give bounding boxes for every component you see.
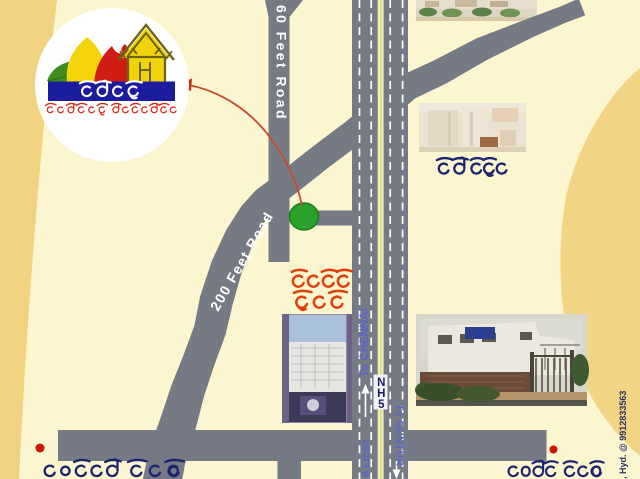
svg-text:s, Hyd. @ 9912833563: s, Hyd. @ 9912833563 [618, 391, 628, 479]
svg-text:5: 5 [378, 399, 385, 411]
svg-text:6 Lines: 6 Lines [360, 439, 372, 477]
svg-text:To CHENNAI: To CHENNAI [359, 308, 371, 377]
svg-text:60 Feet Road: 60 Feet Road [274, 5, 290, 121]
svg-text:To GUNTUR: To GUNTUR [394, 404, 405, 466]
